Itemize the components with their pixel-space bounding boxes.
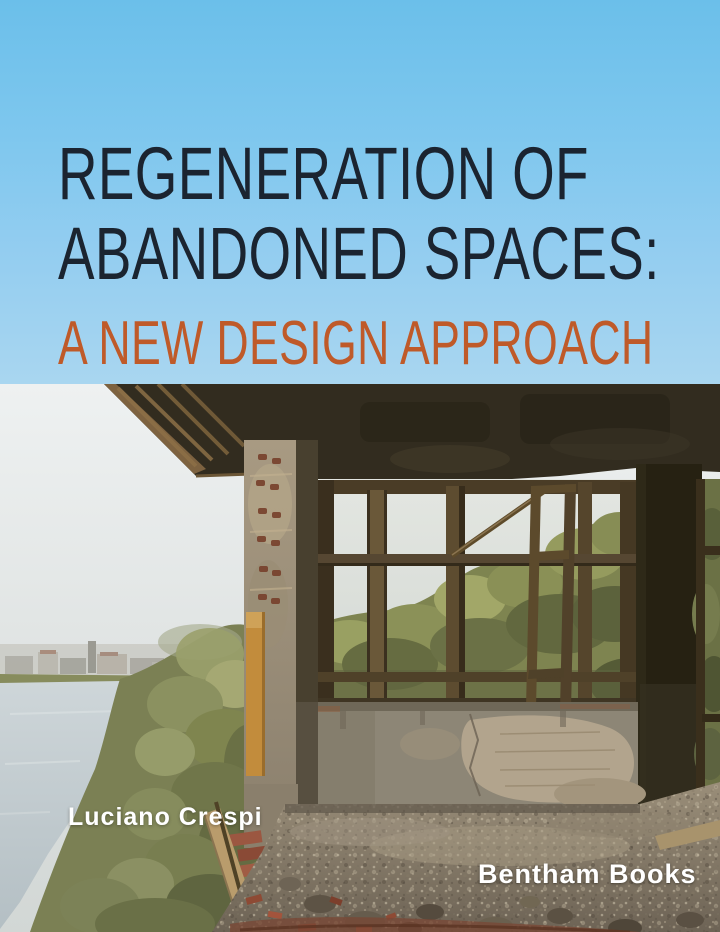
book-cover: REGENERATION OF ABANDONED SPACES: A NEW … [0,0,720,932]
title-block: REGENERATION OF ABANDONED SPACES: A NEW … [58,134,720,375]
publisher-name: Bentham Books [478,859,697,890]
cover-photo [0,384,720,932]
title-line-2: ABANDONED SPACES: [58,214,670,294]
title-line-1: REGENERATION OF [58,134,670,214]
cover-photo-illustration [0,384,720,932]
photo-parapet-wall [285,702,646,810]
photo-rubble-floor [212,782,720,932]
photo-right-pier [636,464,720,814]
author-name: Luciano Crespi [68,803,263,832]
subtitle: A NEW DESIGN APPROACH [58,313,653,375]
